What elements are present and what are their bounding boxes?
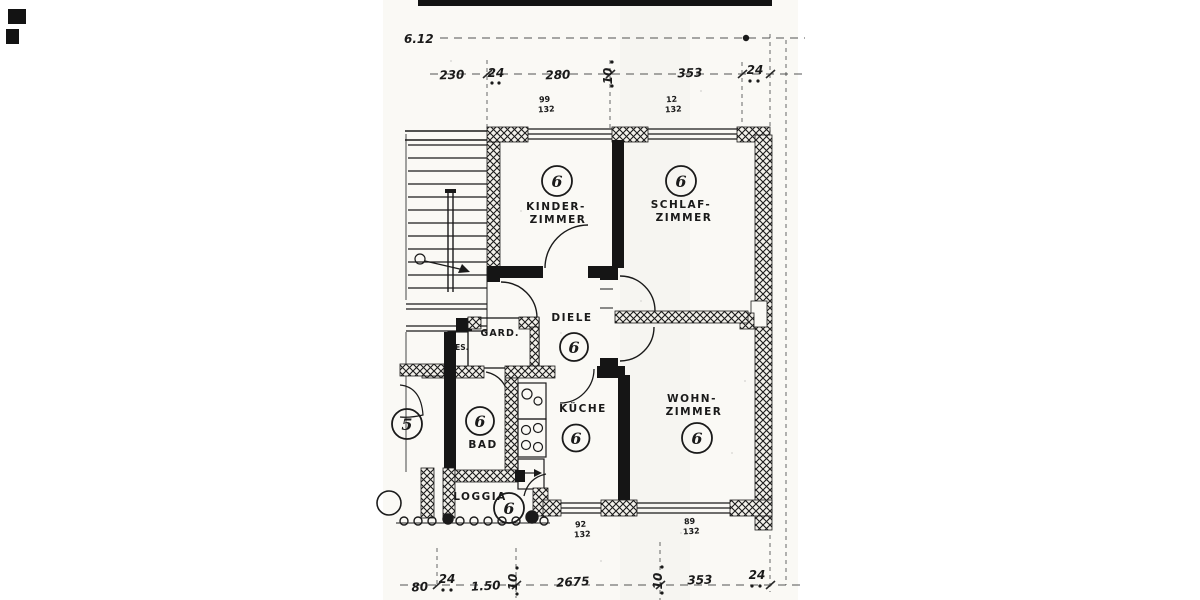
svg-text:6: 6	[474, 412, 485, 431]
svg-text:132: 132	[683, 526, 700, 536]
dimension-bottom-2: 1.50	[471, 578, 501, 594]
dimension-top-2: 280	[545, 68, 571, 83]
wall-kinder-schlaf	[612, 140, 624, 268]
dimension-top-5: 24	[747, 63, 764, 77]
dimension-top-4: 353	[677, 66, 703, 81]
dimension-bottom-6: 353	[687, 573, 713, 588]
scan-corner-mark	[6, 29, 19, 44]
dimension-bottom-5: 10	[651, 573, 665, 590]
room-label-schlafzimmer: SCHLAF-ZIMMER	[651, 199, 713, 224]
svg-text:132: 132	[665, 104, 682, 114]
svg-text:99: 99	[539, 95, 551, 105]
svg-text:132: 132	[574, 529, 591, 539]
exterior-wall-bottom	[543, 500, 772, 516]
room-label-kueche: KÜCHE	[559, 401, 607, 415]
room-label-diele: DIELE	[551, 312, 592, 324]
floor-plan-svg: 6.12 230 24 280 10 353 24 99 132 12 132	[0, 0, 1200, 600]
svg-text:5: 5	[401, 415, 412, 434]
dimension-bottom-4: 2675	[556, 574, 590, 590]
room-label-wohnzimmer: WOHN-ZIMMER	[666, 393, 723, 418]
svg-text:132: 132	[538, 104, 555, 114]
svg-text:6: 6	[503, 499, 514, 518]
svg-text:89: 89	[684, 517, 696, 527]
dimension-bottom-3: 10	[506, 574, 520, 591]
wall-kueche-wohn	[618, 375, 630, 505]
svg-text:92: 92	[575, 520, 587, 530]
room-label-bad: BAD	[468, 439, 497, 451]
dimension-top-0: 230	[439, 68, 465, 83]
dimension-overall: 6.12	[404, 32, 434, 46]
wall-kinderzimmer-left	[487, 142, 500, 268]
svg-text:6: 6	[691, 429, 702, 448]
scan-edge-bar	[418, 0, 772, 6]
floor-plan-scan: 6.12 230 24 280 10 353 24 99 132 12 132	[0, 0, 1200, 600]
dimension-bottom-0: 80	[411, 580, 428, 595]
room-label-kinderzimmer: KINDER-ZIMMER	[526, 201, 586, 226]
room-label-garderobe: GARD.	[481, 328, 520, 339]
dimension-bottom-1: 24	[439, 572, 456, 586]
dimension-bottom-7: 24	[749, 568, 766, 582]
wall-bad-kueche	[505, 378, 518, 470]
svg-text:12: 12	[666, 95, 678, 105]
dimension-top-1: 24	[488, 66, 505, 80]
svg-text:6: 6	[568, 338, 579, 357]
svg-text:6: 6	[551, 172, 562, 191]
scan-corner-mark	[8, 9, 26, 24]
dimension-top-3: 10	[601, 68, 615, 85]
svg-text:6: 6	[570, 429, 581, 448]
svg-text:6: 6	[675, 172, 686, 191]
